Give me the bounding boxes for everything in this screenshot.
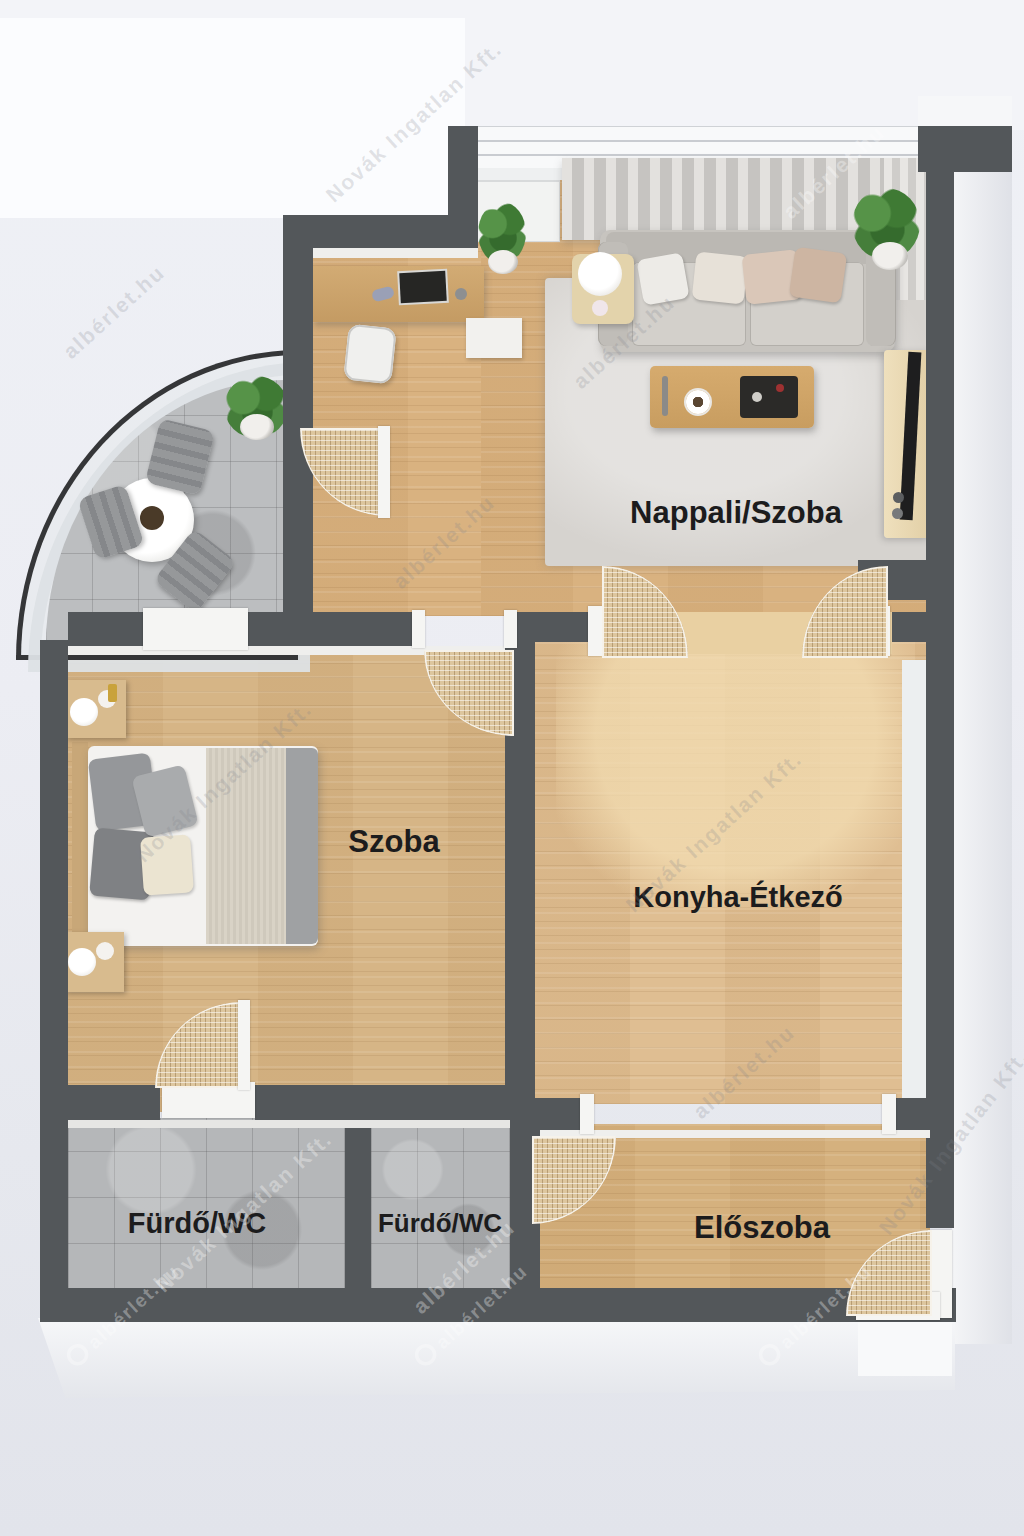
window-mullion-1 [448,140,938,142]
label-living-room: Nappali/Szoba [630,495,842,531]
watermark-site: albérlet.hu [58,260,169,364]
bathroom2-floor [371,1118,510,1290]
bedroom-door-jamb-left [412,610,425,648]
door-arc-living-left-jamb [378,426,390,518]
tv-speaker-2 [892,508,903,519]
nightstand-top-lamp [70,698,98,726]
outer-face-top-right [918,96,1012,130]
wall-balcony-right-seg [248,612,313,646]
living-plant-door-pot [488,250,518,274]
sofa-pillow-cream [692,251,749,304]
window-mullion-2 [448,154,938,156]
hall-jamb-left [580,1094,594,1134]
coffee-cup [686,390,710,414]
sofa-pillow-white [636,252,689,305]
wall-bottom-outer [40,1288,956,1322]
desk-monitor [399,271,447,303]
innerface-kitchen-right [902,660,926,1098]
wall-kitchen-top-right-seg [892,612,928,642]
outer-face-bottom [38,1318,955,1398]
floor-plan-canvas: Nappali/Szoba Szoba Konyha-Étkező Fürdő/… [0,0,1024,1536]
table-lamp [578,252,622,296]
wall-window-connector [448,126,478,248]
door-arc-bath1-jamb [238,1000,250,1090]
bed-pillow-cream [140,834,194,895]
coffee-table-tray [740,376,798,418]
wall-balcony-left-seg [68,612,143,646]
outer-face-right [952,146,1012,1344]
desk-mouse [455,288,467,300]
label-bathroom-1: Fürdő/WC [128,1207,267,1240]
wall-kitchen-hall-right-seg [896,1098,930,1130]
hall-jamb-right [882,1094,896,1134]
wall-bathrooms-top-right-seg [255,1085,510,1120]
nightstand-bottom-lamp [68,948,96,976]
wall-bathrooms-top-left-seg [40,1085,160,1120]
wall-top-right-corner [918,126,1012,172]
bed-blanket-texture [206,748,288,944]
tray-dot-white [752,392,762,402]
wall-bathroom-divider [345,1118,371,1290]
balcony-table-bowl [140,506,164,530]
side-table-decor [592,300,608,316]
innerface-bath-top [68,1120,510,1128]
desk-chair [343,324,397,385]
balcony-plant-pot [240,414,274,440]
wall-kitchen-hall-left-seg [535,1098,583,1130]
outer-face-top-left [0,18,465,218]
label-kitchen: Konyha-Étkező [633,881,842,914]
bathroom1-floor [68,1118,345,1290]
tv-speaker-1 [893,492,904,503]
label-hallway: Előszoba [694,1210,830,1246]
nightstand-bottom-decor [96,942,114,960]
kitchen-floor-light-patch [556,640,916,910]
wall-right-outer [926,168,954,1228]
kitchen-door-jamb-left [588,606,602,656]
balcony-door-threshold [143,608,248,650]
nightstand-top-bottle [108,684,117,702]
bed-blanket-gray [286,748,318,944]
label-bedroom: Szoba [348,824,439,860]
remote [662,376,668,416]
wall-bedroom-top-right-seg [515,612,595,642]
sofa-pillow-rose [789,247,847,304]
wall-bedroom-top [313,612,423,646]
desk-return [466,318,522,358]
label-bathroom-2: Fürdő/WC [378,1208,502,1239]
wall-left-outer [40,640,68,1320]
bed-headboard [72,742,88,950]
living-plant-right-pot [872,242,908,270]
bedroom-door-jamb-right [504,610,517,648]
tray-dot-red [776,384,784,392]
innerface-under-top-left-wall [313,248,478,258]
